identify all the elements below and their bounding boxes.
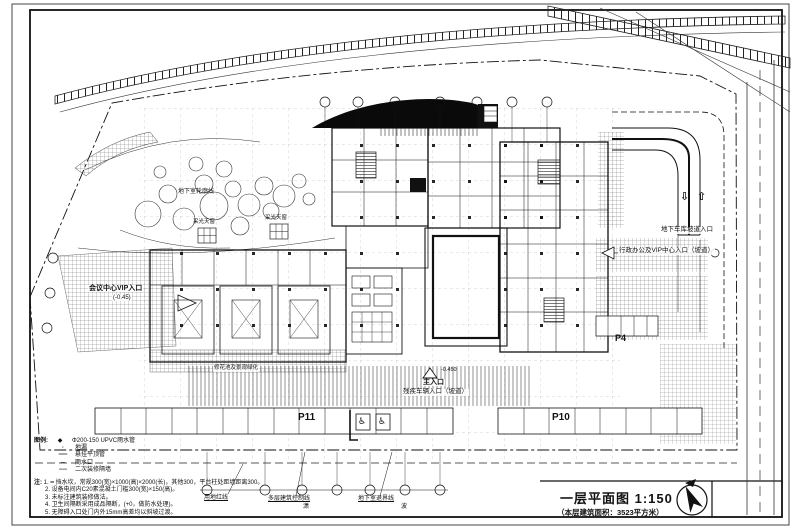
core-shaft: [410, 178, 426, 192]
ramp-up-arrow-icon: ⇧: [697, 192, 706, 203]
legend-symbol-rain-inlet: ─: [51, 460, 75, 467]
main-entrance-label: 主入口: [422, 379, 445, 386]
road-char-right: 波: [401, 504, 407, 510]
basement-setback-label: 地下室退界线: [358, 496, 394, 502]
wheelchair-icon: ♿: [358, 417, 366, 426]
legend-item-drain: 地漏: [75, 445, 87, 451]
drawing-title: 一层平面图 1:150: [560, 492, 673, 505]
legend-symbol-rainpipe: ◆: [48, 438, 72, 445]
note-1: 1. ━ 挡水坎，常规300(宽)×1000(高)×2000(长)，其他300，…: [44, 480, 264, 486]
garage-ramp-label: 地下车库坡道入口: [660, 227, 714, 234]
main-entrance-elevation: -0.450: [441, 368, 457, 374]
legend-item-ceiling-pipe: 悬挂平顶管: [75, 452, 105, 458]
ramp-down-arrow-icon: ⇩: [680, 192, 689, 203]
road-char-left: 潇: [303, 504, 309, 510]
accessible-entrance-label: 残疾车辆入口（坡道）: [402, 389, 469, 396]
notes-heading: 注:: [34, 480, 42, 486]
legend-symbol-partition: ----: [51, 467, 75, 474]
control-line-label: 多层建筑控制线: [268, 496, 310, 502]
note-5: 5. 无障碍入口处门内外15mm高差均以斜坡过渡。: [45, 510, 263, 517]
legend-item-rainpipe: Φ200-150 UPVC雨水管: [72, 438, 135, 444]
parking-label-p10: P10: [552, 413, 570, 423]
notes: 注: 1. ━ 挡水坎，常规300(宽)×1000(高)×2000(长)，其他3…: [34, 480, 263, 517]
note-2: 2. 设备电间内C20素混凝土门槛300(宽)×150(高)。: [45, 487, 263, 494]
wheelchair-icon: ♿: [378, 417, 386, 426]
parking-label-p4: P4: [615, 334, 626, 343]
basement-outline-label: 地下室轮廓线: [178, 189, 214, 195]
drawing-subtitle: （本层建筑面积：3523平方米）: [557, 509, 664, 517]
parking-row-p4: [596, 316, 658, 336]
admin-entrance-label: 行政办公及VIP中心入口（坡道）: [618, 248, 715, 255]
parking-label-p11: P11: [298, 413, 315, 423]
note-4: 4. 卫生间隔断采用成品隔断，(+0，做防水处理)。: [45, 502, 263, 509]
skylight-label-1: 采光天窗: [193, 220, 215, 226]
skylight-label-2: 采光天窗: [265, 216, 287, 222]
legend-heading: 图例:: [34, 438, 48, 444]
planter-label: 修花池及景观绿化: [213, 366, 259, 372]
entrance-plaza-stripes: [186, 366, 530, 406]
legend-item-rain-inlet: 雨水口: [75, 460, 93, 466]
vip-entrance-elevation: (-0.45): [112, 295, 132, 301]
legend: 图例:◆Φ200-150 UPVC雨水管 ·地漏 ══悬挂平顶管 ─雨水口 --…: [34, 438, 135, 474]
legend-symbol-ceiling-pipe: ══: [51, 452, 75, 459]
legend-item-partition: 二次装修隔墙: [75, 467, 111, 473]
vip-entrance-label: 会议中心VIP入口: [88, 285, 143, 292]
legend-symbol-drain: ·: [51, 445, 75, 452]
floor-plan-sheet: 地下室轮廓线 采光天窗 采光天窗 会议中心VIP入口 (-0.45) 行政办公及…: [0, 0, 800, 531]
